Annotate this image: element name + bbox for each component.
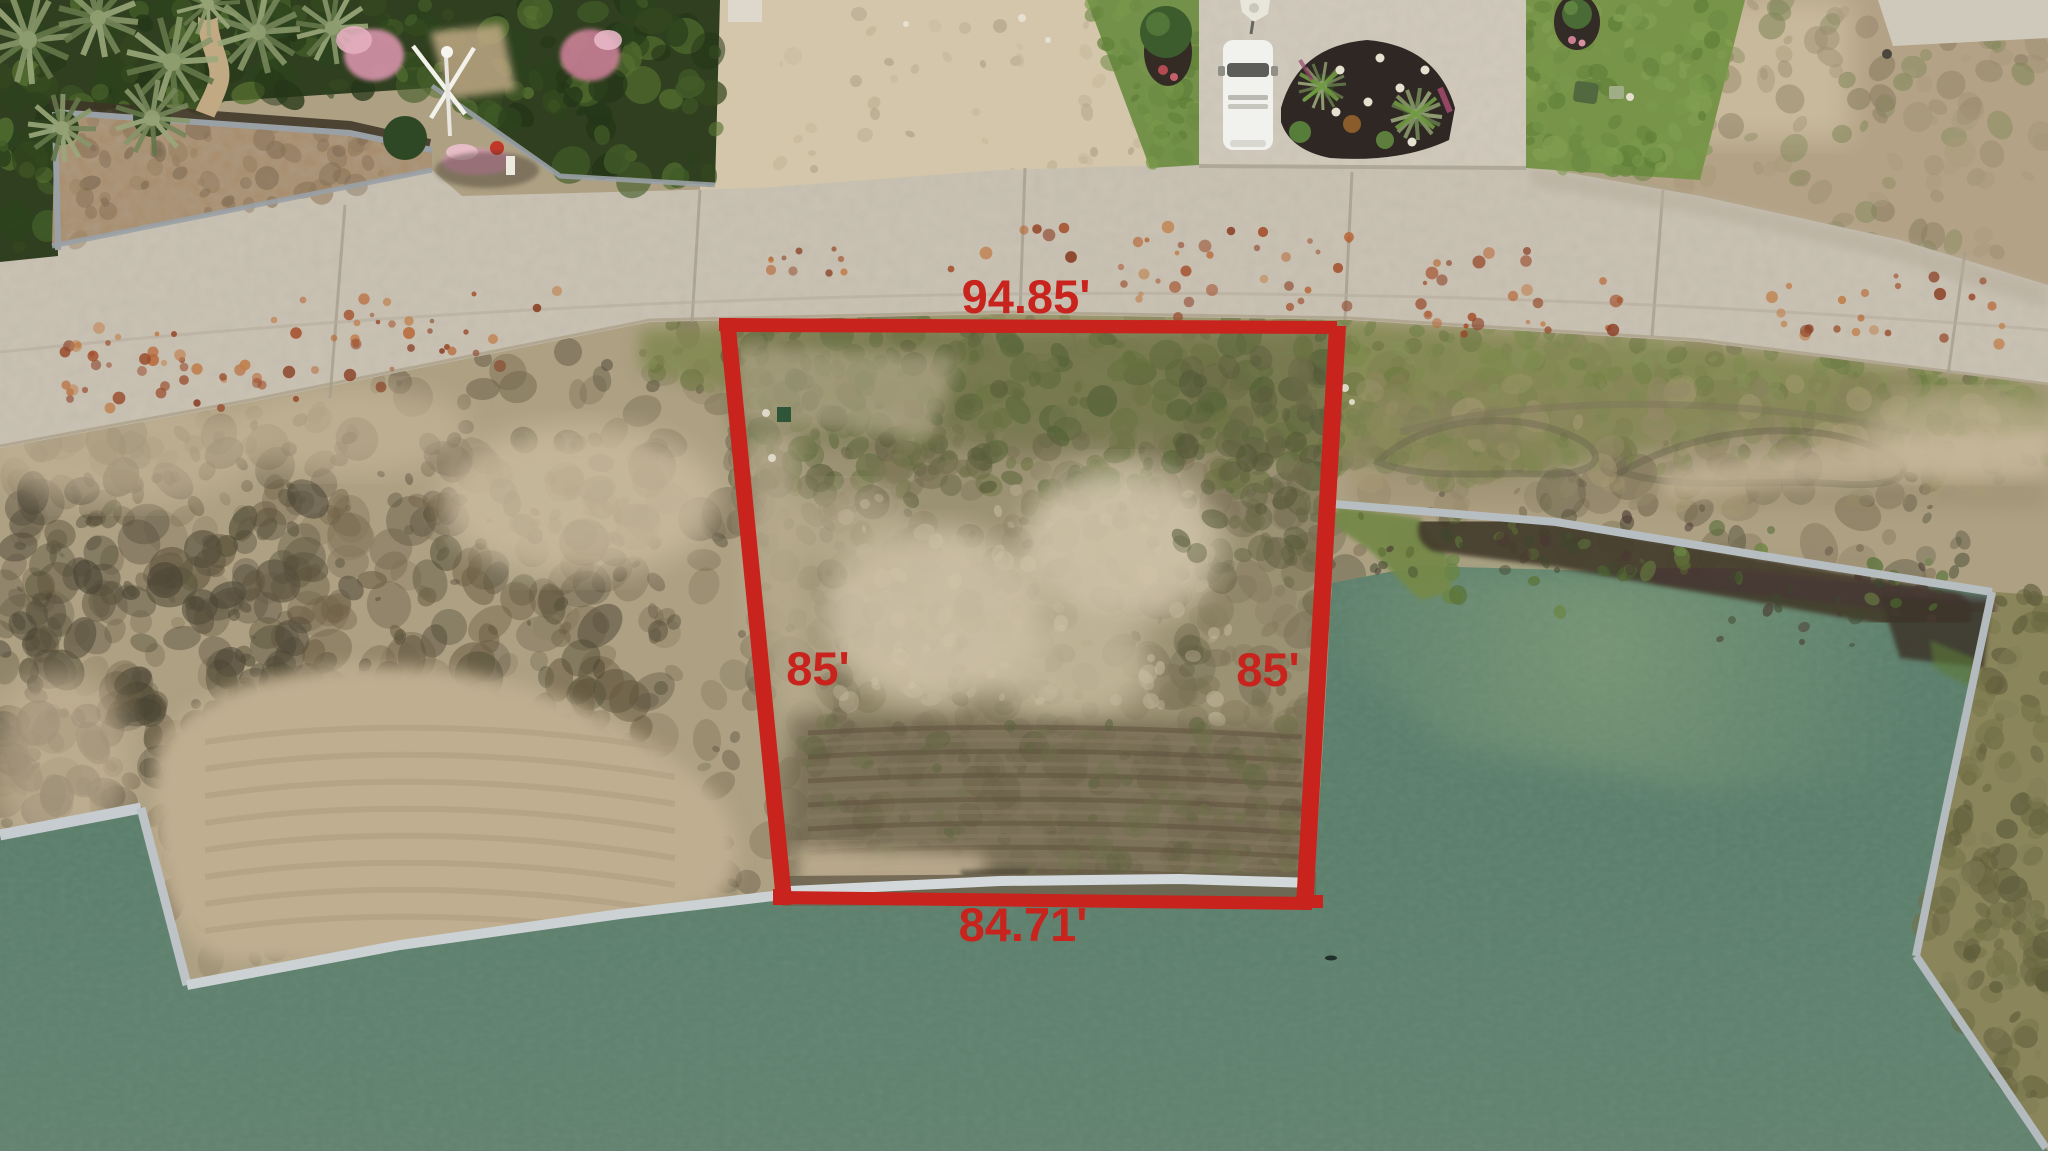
svg-text:85': 85' bbox=[786, 642, 849, 695]
svg-text:94.85': 94.85' bbox=[962, 270, 1091, 323]
svg-text:85': 85' bbox=[1236, 643, 1299, 696]
svg-text:84.71': 84.71' bbox=[959, 898, 1088, 951]
